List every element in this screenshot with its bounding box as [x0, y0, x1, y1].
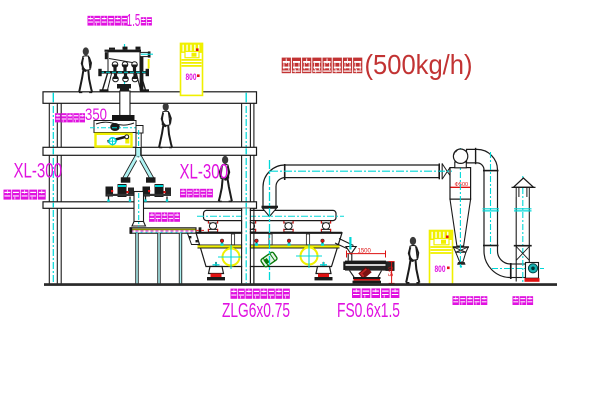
svg-text:800: 800 — [186, 72, 197, 83]
svg-text:Φ500: Φ500 — [455, 182, 469, 188]
svg-text:(500kg/h): (500kg/h) — [365, 49, 473, 80]
svg-text:800: 800 — [435, 264, 446, 275]
svg-text:XL-300: XL-300 — [180, 160, 229, 183]
svg-text:ZLG6x0.75: ZLG6x0.75 — [222, 300, 290, 322]
svg-text:1.5: 1.5 — [127, 10, 141, 30]
svg-text:XL-300: XL-300 — [14, 160, 63, 183]
svg-text:1500: 1500 — [358, 249, 372, 255]
svg-text:FS0.6x1.5: FS0.6x1.5 — [337, 300, 400, 322]
svg-text:350: 350 — [85, 106, 107, 124]
svg-text:540: 540 — [389, 266, 395, 277]
